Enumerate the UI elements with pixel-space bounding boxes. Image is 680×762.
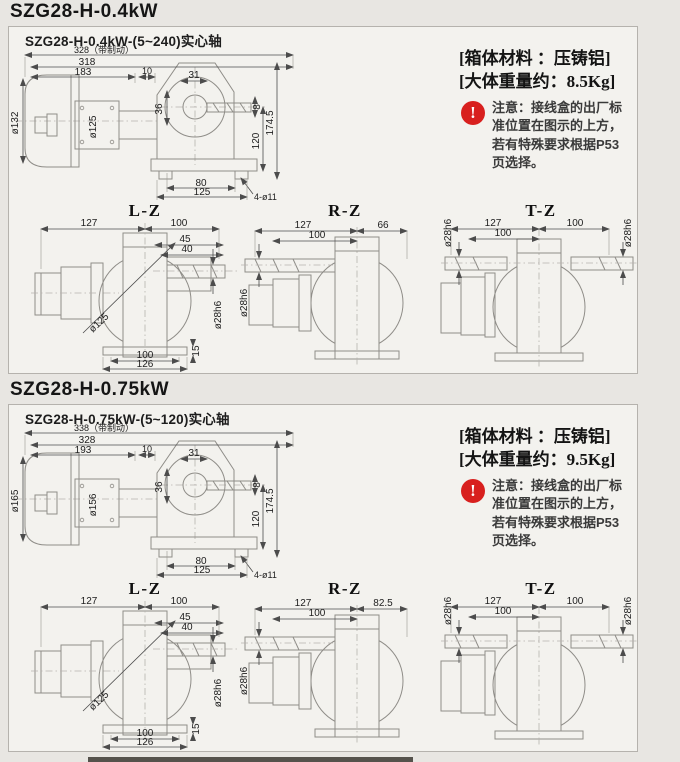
view-label: R-Z bbox=[328, 579, 362, 598]
main-drawing: 328（带制动） 318 183 10 31 ø132 ø125 36 8 12… bbox=[9, 47, 309, 205]
dim-label: 10 bbox=[142, 66, 152, 76]
shaft-label: ø28h6 bbox=[443, 596, 454, 625]
dim-label: 82.5 bbox=[373, 598, 393, 609]
dim-label: 100 bbox=[495, 606, 512, 617]
dim-label: 15 bbox=[191, 345, 202, 357]
shaft-label: ø28h6 bbox=[623, 596, 634, 625]
dim-label: 328（带制动） bbox=[74, 44, 134, 55]
dim-label: 183 bbox=[75, 67, 92, 78]
dim-label: 100 bbox=[171, 596, 188, 607]
dim-label: 8 bbox=[252, 482, 263, 488]
shaft-label: ø28h6 bbox=[239, 288, 250, 317]
dim-label: 15 bbox=[191, 723, 202, 735]
diameter-label: ø125 bbox=[88, 115, 99, 138]
dim-label: 126 bbox=[137, 737, 154, 748]
warning-text: 注意：接线盒的出厂标准位置在图示的上方，若有特殊要求根据P53页选择。 bbox=[492, 99, 622, 173]
dim-label: 120 bbox=[251, 510, 262, 527]
warning-text: 注意：接线盒的出厂标准位置在图示的上方，若有特殊要求根据P53页选择。 bbox=[492, 477, 622, 551]
spec-weight: [大体重量约：9.5Kg] bbox=[459, 449, 615, 472]
shaft-label: ø28h6 bbox=[213, 300, 224, 329]
shaft-label: ø28h6 bbox=[443, 218, 454, 247]
dim-label: 31 bbox=[188, 448, 200, 459]
dim-label: 36 bbox=[154, 481, 165, 493]
view-label: R-Z bbox=[328, 201, 362, 220]
warning-icon: ! bbox=[461, 479, 485, 503]
dim-label: 40 bbox=[181, 622, 193, 633]
dim-label: 100 bbox=[567, 596, 584, 607]
dim-label: 100 bbox=[309, 230, 326, 241]
dim-label: 193 bbox=[75, 445, 92, 456]
drawing-panel: SZG28-H-0.4kW-(5~240)实心轴 328（带制动） 318 18… bbox=[8, 26, 638, 374]
dim-label: 100 bbox=[567, 218, 584, 229]
dim-label: 36 bbox=[154, 103, 165, 115]
dim-label: 338（带制动） bbox=[74, 422, 134, 433]
diameter-label: ø132 bbox=[10, 111, 21, 134]
page-title: SZG28-H-0.75kW bbox=[10, 379, 169, 401]
spec-box: [箱体材料 ：压铸铝] [大体重量约：8.5Kg] bbox=[459, 48, 615, 94]
dim-label: 125 bbox=[194, 187, 211, 198]
dim-label: 40 bbox=[181, 244, 193, 255]
section-04kw: SZG28-H-0.4kW SZG28-H-0.4kW-(5~240)实心轴 3… bbox=[0, 0, 680, 378]
shaft-label: ø28h6 bbox=[623, 218, 634, 247]
section-075kw: SZG28-H-0.75kW SZG28-H-0.75kW-(5~120)实心轴… bbox=[0, 378, 680, 756]
dim-label: 120 bbox=[251, 132, 262, 149]
view-tz: T-Z 127 100 100 ø28h6 ø28h6 bbox=[439, 199, 639, 371]
warning-icon: ! bbox=[461, 101, 485, 125]
warning-note: ! 注意：接线盒的出厂标准位置在图示的上方，若有特殊要求根据P53页选择。 bbox=[461, 99, 622, 173]
warning-note: ! 注意：接线盒的出厂标准位置在图示的上方，若有特殊要求根据P53页选择。 bbox=[461, 477, 622, 551]
dim-label: 126 bbox=[137, 359, 154, 370]
dim-label: 100 bbox=[495, 228, 512, 239]
view-rz: R-Z 127 100 82.5 ø28h6 bbox=[237, 577, 449, 749]
view-label: L-Z bbox=[129, 201, 162, 220]
cropped-next-content-edge bbox=[88, 757, 413, 762]
dim-label: 100 bbox=[309, 608, 326, 619]
dim-label: 174.5 bbox=[265, 110, 276, 135]
page-title: SZG28-H-0.4kW bbox=[10, 1, 158, 23]
spec-material: [箱体材料 ：压铸铝] bbox=[459, 48, 615, 71]
diameter-label: ø165 bbox=[10, 489, 21, 512]
dim-label: 10 bbox=[142, 444, 152, 454]
spec-box: [箱体材料 ：压铸铝] [大体重量约：9.5Kg] bbox=[459, 426, 615, 472]
main-drawing: 338（带制动） 328 193 10 31 ø165 ø156 36 8 12… bbox=[9, 425, 309, 583]
dim-label: 127 bbox=[81, 218, 98, 229]
view-tz: T-Z 127 100 100 ø28h6 ø28h6 bbox=[439, 577, 639, 749]
view-label: T-Z bbox=[525, 579, 556, 598]
view-lz: L-Z 127 100 45 40 ø125 ø28h6 15 100 126 bbox=[27, 577, 252, 749]
dim-label: 125 bbox=[194, 565, 211, 576]
view-lz: L-Z 127 100 45 40 ø125 ø28h6 15 100 126 bbox=[27, 199, 252, 371]
dim-label: 8 bbox=[252, 104, 263, 110]
dim-label: 127 bbox=[81, 596, 98, 607]
view-rz: R-Z 127 100 66 ø28h6 bbox=[237, 199, 449, 371]
spec-weight: [大体重量约：8.5Kg] bbox=[459, 71, 615, 94]
dim-label: 174.5 bbox=[265, 488, 276, 513]
drawing-panel: SZG28-H-0.75kW-(5~120)实心轴 338（带制动） 328 1… bbox=[8, 404, 638, 752]
spec-sheet-page: { "colors": { "page_bg": "#e8e6e2", "pan… bbox=[0, 0, 680, 762]
dim-label: 31 bbox=[188, 70, 200, 81]
dim-label: 100 bbox=[171, 218, 188, 229]
shaft-label: ø28h6 bbox=[239, 666, 250, 695]
shaft-label: ø28h6 bbox=[213, 678, 224, 707]
dim-label: 66 bbox=[377, 220, 389, 231]
spec-material: [箱体材料 ：压铸铝] bbox=[459, 426, 615, 449]
view-label: T-Z bbox=[525, 201, 556, 220]
diameter-label: ø156 bbox=[88, 493, 99, 516]
view-label: L-Z bbox=[129, 579, 162, 598]
